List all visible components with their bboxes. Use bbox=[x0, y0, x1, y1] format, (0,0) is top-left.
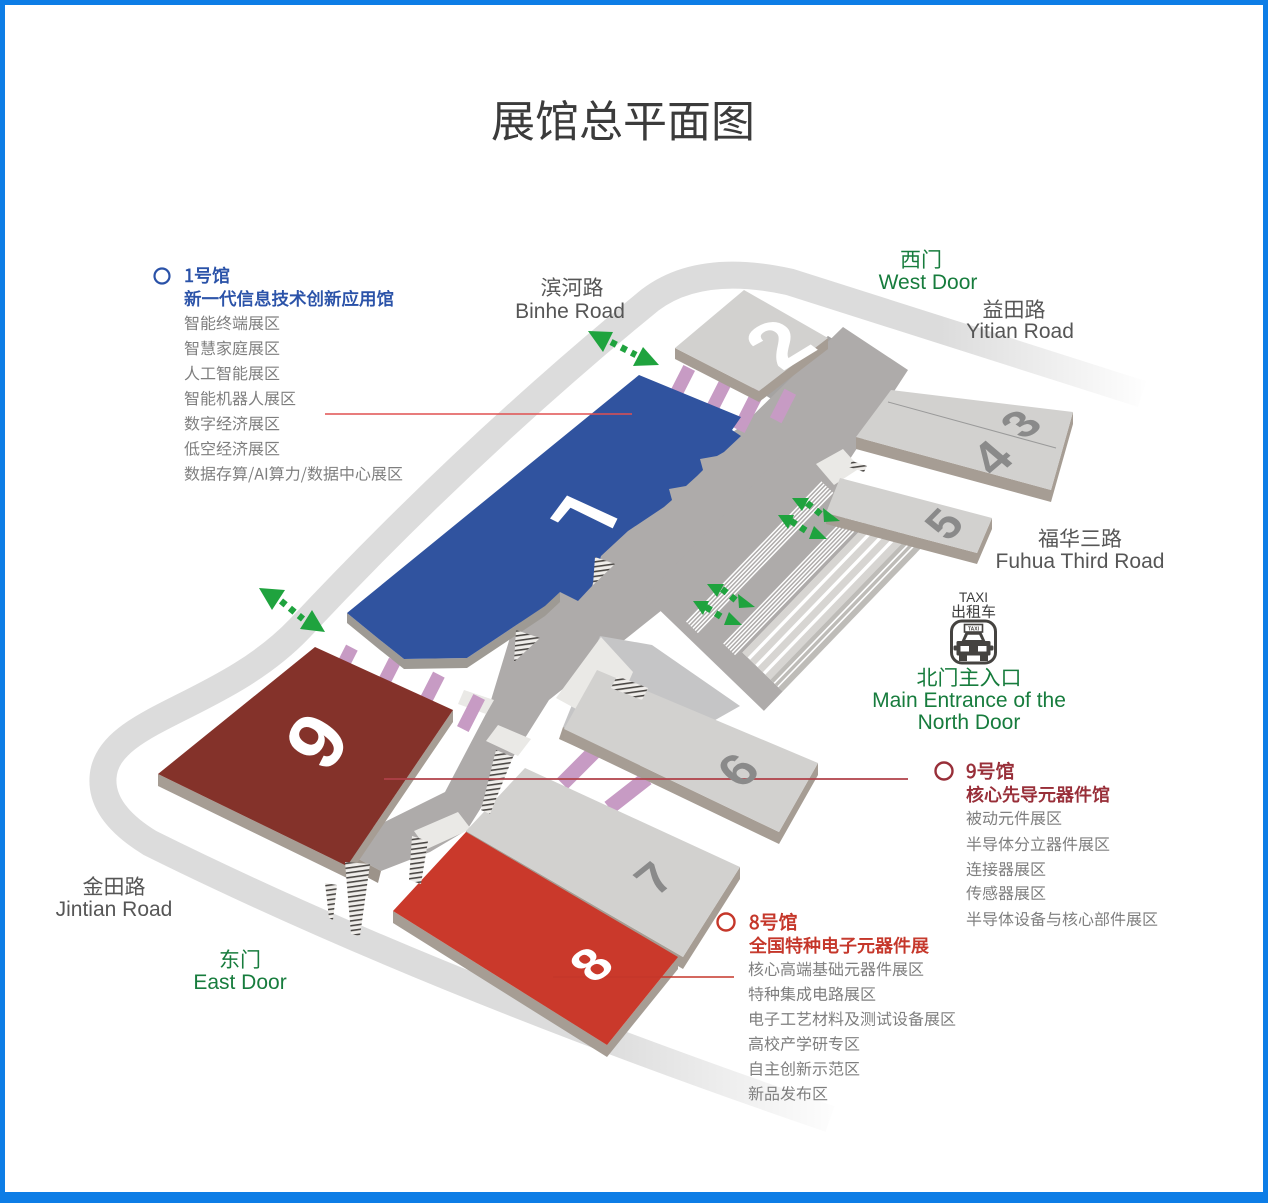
svg-text:Fuhua Third Road: Fuhua Third Road bbox=[996, 550, 1165, 573]
svg-text:East Door: East Door bbox=[193, 971, 286, 994]
svg-text:North Door: North Door bbox=[918, 711, 1021, 734]
svg-text:West Door: West Door bbox=[879, 271, 978, 294]
svg-text:Binhe Road: Binhe Road bbox=[515, 300, 625, 323]
svg-text:Jintian Road: Jintian Road bbox=[56, 898, 173, 921]
svg-text:Main Entrance of the: Main Entrance of the bbox=[872, 689, 1066, 712]
svg-text:TAXI: TAXI bbox=[968, 627, 980, 633]
svg-text:TAXI: TAXI bbox=[959, 590, 988, 605]
svg-text:Yitian Road: Yitian Road bbox=[966, 320, 1074, 343]
